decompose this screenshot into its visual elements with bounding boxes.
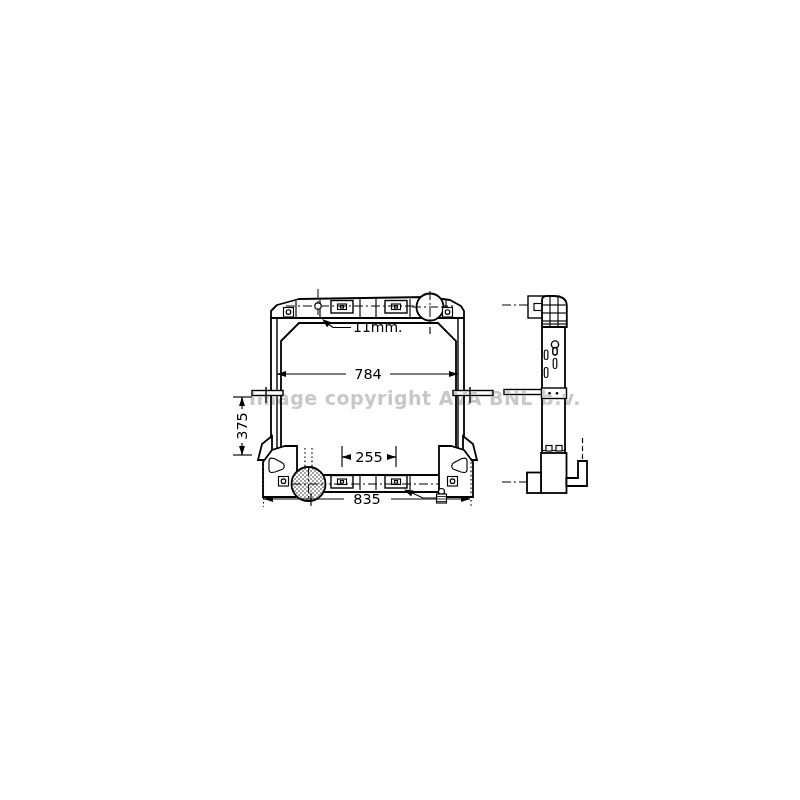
side-top-tank-section: [542, 296, 567, 327]
dim-label-375: 375: [234, 412, 250, 440]
bottom-mount-bracket-left: [331, 476, 353, 489]
pin-hole: [315, 303, 321, 309]
dim-label-255: 255: [355, 449, 383, 465]
watermark-text: Image copyright AVA BNL b.v.: [249, 387, 581, 409]
bracket-bolt: [448, 477, 458, 487]
technical-drawing-page: 11mm. 784 375: [0, 0, 800, 800]
dim-label-784: 784: [354, 366, 382, 382]
side-bottom-tank-section: [527, 446, 567, 494]
top-left-bolt: [284, 308, 294, 318]
side-bottom-bracket: [527, 473, 541, 494]
dim-label-11mm: 11mm.: [353, 319, 403, 335]
top-mount-bracket-right: [385, 301, 407, 314]
side-keyhole-slot: [551, 341, 558, 355]
bracket-bolt: [279, 477, 289, 487]
side-outlet-pipe: [567, 438, 588, 486]
bottom-mount-bracket-right: [385, 476, 407, 489]
top-mount-bracket-left: [331, 301, 353, 314]
dim-label-835: 835: [353, 491, 381, 507]
top-right-bolt: [443, 308, 453, 318]
